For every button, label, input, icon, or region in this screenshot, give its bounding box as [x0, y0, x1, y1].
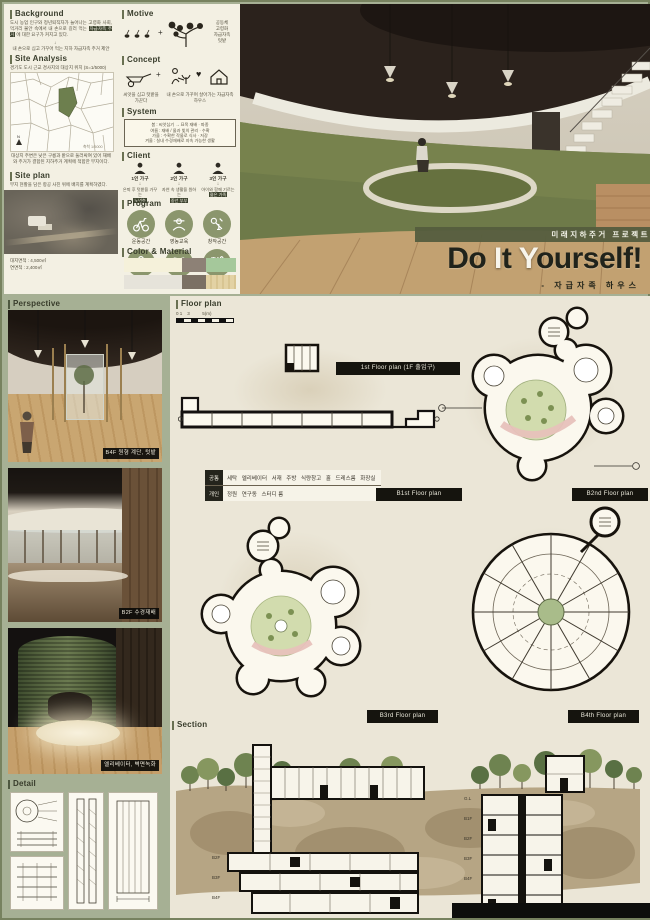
hero-render: 미래지하주거 프로젝트 Do It Yourself! - 자급자족 하우스 [240, 4, 650, 294]
swatch-cream [124, 258, 182, 272]
section-drawing [170, 733, 650, 918]
client-desc: 은퇴 후 텃밭을 가꾸는 [122, 187, 158, 198]
room-legend-table: 공통 세탁 엘리베이터 서재 주방 식량창고 홀 드레스룸 화장실 개인 정원 … [205, 470, 381, 501]
detail-section-lines [11, 857, 63, 909]
plan-label-b1f: B1st Floor plan [376, 488, 462, 501]
glowing-round-bench [36, 720, 120, 746]
perspective-render-2: B2F 수경재배 [8, 468, 162, 622]
concept-caption-1: 씨앗을 심고 텃밭을 가꾼다 [122, 92, 160, 104]
background-body-text2: 에 대한 요구가 커지고 있다. [15, 32, 68, 37]
concept-header: Concept [122, 56, 160, 65]
compass-icon [16, 139, 22, 145]
parcel-map-drawing: N 축척 1/5000 [11, 73, 113, 151]
legend-row-private: 개인 정원 연구동 스터디 룸 [205, 486, 381, 501]
level-label: B3F [464, 857, 472, 862]
map-scale-label: 축척 1/5000 [83, 144, 103, 149]
client-focus: 중년 부부 [170, 198, 189, 203]
title-part-white: Y [519, 242, 536, 275]
motive-header: Motive [122, 10, 154, 19]
background-body: 도시 농업 인구와 정년퇴직자가 늘어나는 고령화 사회, 먹거리 불안 속에서… [10, 20, 112, 38]
swatch-green [206, 258, 236, 272]
floor-plan-header: Floor plan [176, 300, 222, 309]
down-arrow-icon: ↓ [54, 40, 56, 46]
background-header: Background [10, 10, 64, 19]
farmer-icon [170, 215, 188, 233]
perspective-render-1: B4F 원형 계단, 텃밭 [8, 310, 162, 462]
client-row: 1인 가구 ↓ 은퇴 후 텃밭을 가꾸는 노년층 2인 가구 ↓ 자연 속 생활… [122, 162, 236, 203]
perspective-header: Perspective [8, 300, 60, 309]
swatch-gray [182, 258, 206, 272]
floor-plan-1f-drawing [436, 306, 648, 482]
perspective-render-3: 엘리베이터, 벽면녹화 [8, 628, 162, 774]
person-icon [211, 162, 225, 175]
level-label: B2F [464, 837, 472, 842]
hanging-lamps [8, 310, 162, 370]
program-label: 창작공간 [198, 238, 236, 245]
system-line: 겨울 : 실내 수경재배로 지속 가능한 생활 [125, 138, 235, 143]
level-label: B3F [212, 876, 220, 881]
legend-row-common: 공통 세탁 엘리베이터 서재 주방 식량창고 홀 드레스룸 화장실 [205, 470, 381, 486]
plus-sign: + [156, 70, 161, 79]
building-footprint [28, 216, 46, 226]
program-label: 운동공간 [122, 238, 160, 245]
program-item: 영농교육 [160, 210, 198, 245]
motive-label: 텃밭 [208, 38, 236, 44]
motive-labels: 공동체 고령화 자급자족 텃밭 [208, 20, 236, 43]
section-header: Section [172, 721, 207, 730]
poster-subtitle: - 자급자족 하우스 [541, 280, 640, 291]
person-icon [133, 162, 147, 175]
compass-label: N [17, 134, 20, 139]
client-header: Client [122, 152, 150, 161]
level-label: B2F [212, 856, 220, 861]
material-swatch-row-2 [124, 275, 236, 289]
perspective-caption-2: B2F 수경재배 [119, 608, 159, 619]
house-icon [208, 68, 230, 86]
road [4, 228, 118, 246]
tools-icon [208, 215, 226, 233]
program-item: 운동공간 [122, 210, 160, 245]
site-analysis-caption: 경기도 도시 근교 경사지의 대상지 위치 (S=1/5000) [10, 65, 112, 71]
background-note: 내 손으로 심고 가꾸어 먹는 지하 자급자족 주거 제안 [10, 46, 112, 52]
detail-drawing-2 [10, 856, 64, 910]
person-silhouette [16, 410, 38, 454]
scale-bar [176, 318, 234, 323]
site-analysis-header: Site Analysis [10, 55, 67, 64]
gardener-icon [168, 66, 192, 88]
detail-wall-section [69, 793, 103, 909]
program-header: Program [122, 200, 161, 209]
swatch-taupe [182, 275, 206, 289]
site-polygon [59, 87, 77, 117]
plan-label-b3f: B3rd Floor plan [367, 710, 438, 723]
title-part-white: I [494, 242, 502, 275]
client-item: 1인 가구 ↓ 은퇴 후 텃밭을 가꾸는 노년층 [122, 162, 158, 203]
title-part: Do [447, 242, 494, 275]
presentation-board: Background 도시 농업 인구와 정년퇴직자가 늘어나는 고령화 사회,… [0, 0, 650, 920]
color-material-header: Color & Material [122, 248, 192, 257]
site-stat-2: 연면적 : 2,400㎡ [10, 265, 42, 271]
detail-header: Detail [8, 780, 36, 789]
site-plan-caption: 부지 현황을 담은 항공 사진 위에 배치를 계획하였다. [10, 182, 112, 188]
client-item: 3인 가구 ↓ 아이와 함께 기르는 젊은 가족 [200, 162, 236, 203]
detail-elevation [109, 793, 157, 909]
system-box: 봄 : 씨앗심기 → 묘목 재배 · 파종 여름 : 재배 / 물과 빛의 관리… [124, 119, 236, 147]
perspective-caption-1: B4F 원형 계단, 텃밭 [103, 448, 159, 459]
site-plan-header: Site plan [10, 172, 50, 181]
title-part: ourself! [536, 242, 642, 275]
client-item: 2인 가구 ↓ 자연 속 생활을 원하는 중년 부부 [161, 162, 197, 203]
wheelbarrow-icon [124, 68, 154, 88]
program-label: 영농교육 [160, 238, 198, 245]
project-band: 미래지하주거 프로젝트 [415, 227, 650, 242]
detail-drawing-1 [10, 792, 64, 852]
detail-drawing-3 [68, 792, 104, 910]
wood-wall [122, 468, 162, 622]
heart-icon: ♥ [196, 70, 201, 79]
concept-caption-2: 내 손으로 가꾸며 살아가는 자급자족 하우스 [164, 92, 236, 104]
material-swatch-row-1 [124, 258, 236, 272]
fruit-branch-icon [166, 20, 206, 48]
level-label: B4F [212, 896, 220, 901]
site-stat-1: 대지면적 : 4,500㎡ [10, 258, 46, 264]
program-item: 창작공간 [198, 210, 236, 245]
legend-cells: 세탁 엘리베이터 서재 주방 식량창고 홀 드레스룸 화장실 [223, 470, 381, 485]
person-icon [172, 162, 186, 175]
level-label: B1F [464, 817, 472, 822]
entry-plan-drawing [283, 342, 321, 376]
level-label: B4F [464, 877, 472, 882]
site-analysis-note: 대상지 주변은 낮은 구릉과 밭으로 둘러싸여 있어 재배와 주거가 결합된 지… [10, 153, 112, 165]
exercise-bike-icon [132, 215, 150, 233]
plus-sign: + [158, 28, 163, 37]
perspective-caption-3: 엘리베이터, 벽면녹화 [101, 760, 159, 771]
title-part: t [502, 242, 519, 275]
floor-plan-b2-drawing [453, 500, 648, 696]
linear-plan-drawing [178, 392, 440, 444]
scale-numbers: 0 1 3 5(m) [176, 311, 212, 317]
floor-plan-b1-drawing [193, 514, 368, 704]
poster-title: Do It Yourself! [447, 244, 642, 274]
swatch-plaster [124, 275, 182, 289]
aerial-photo [4, 190, 118, 254]
footer-bar [452, 903, 650, 918]
plan-label-b4f: B4th Floor plan [568, 710, 639, 723]
seeds-icon [122, 26, 156, 42]
level-label: G.L [464, 797, 471, 802]
dark-column [48, 692, 92, 722]
client-focus: 젊은 가족 [209, 192, 228, 197]
legend-head: 공통 [205, 470, 223, 485]
detail-circle-callout [11, 793, 63, 851]
client-desc: 자연 속 생활을 원하는 [161, 187, 197, 198]
system-header: System [122, 108, 157, 117]
site-analysis-map: N 축척 1/5000 [10, 72, 114, 152]
lower-balcony [8, 570, 128, 582]
legend-head: 개인 [205, 486, 223, 501]
legend-cells: 정원 연구동 스터디 룸 [223, 486, 381, 501]
swatch-wood [206, 275, 236, 289]
detail-drawing-4 [108, 792, 158, 910]
